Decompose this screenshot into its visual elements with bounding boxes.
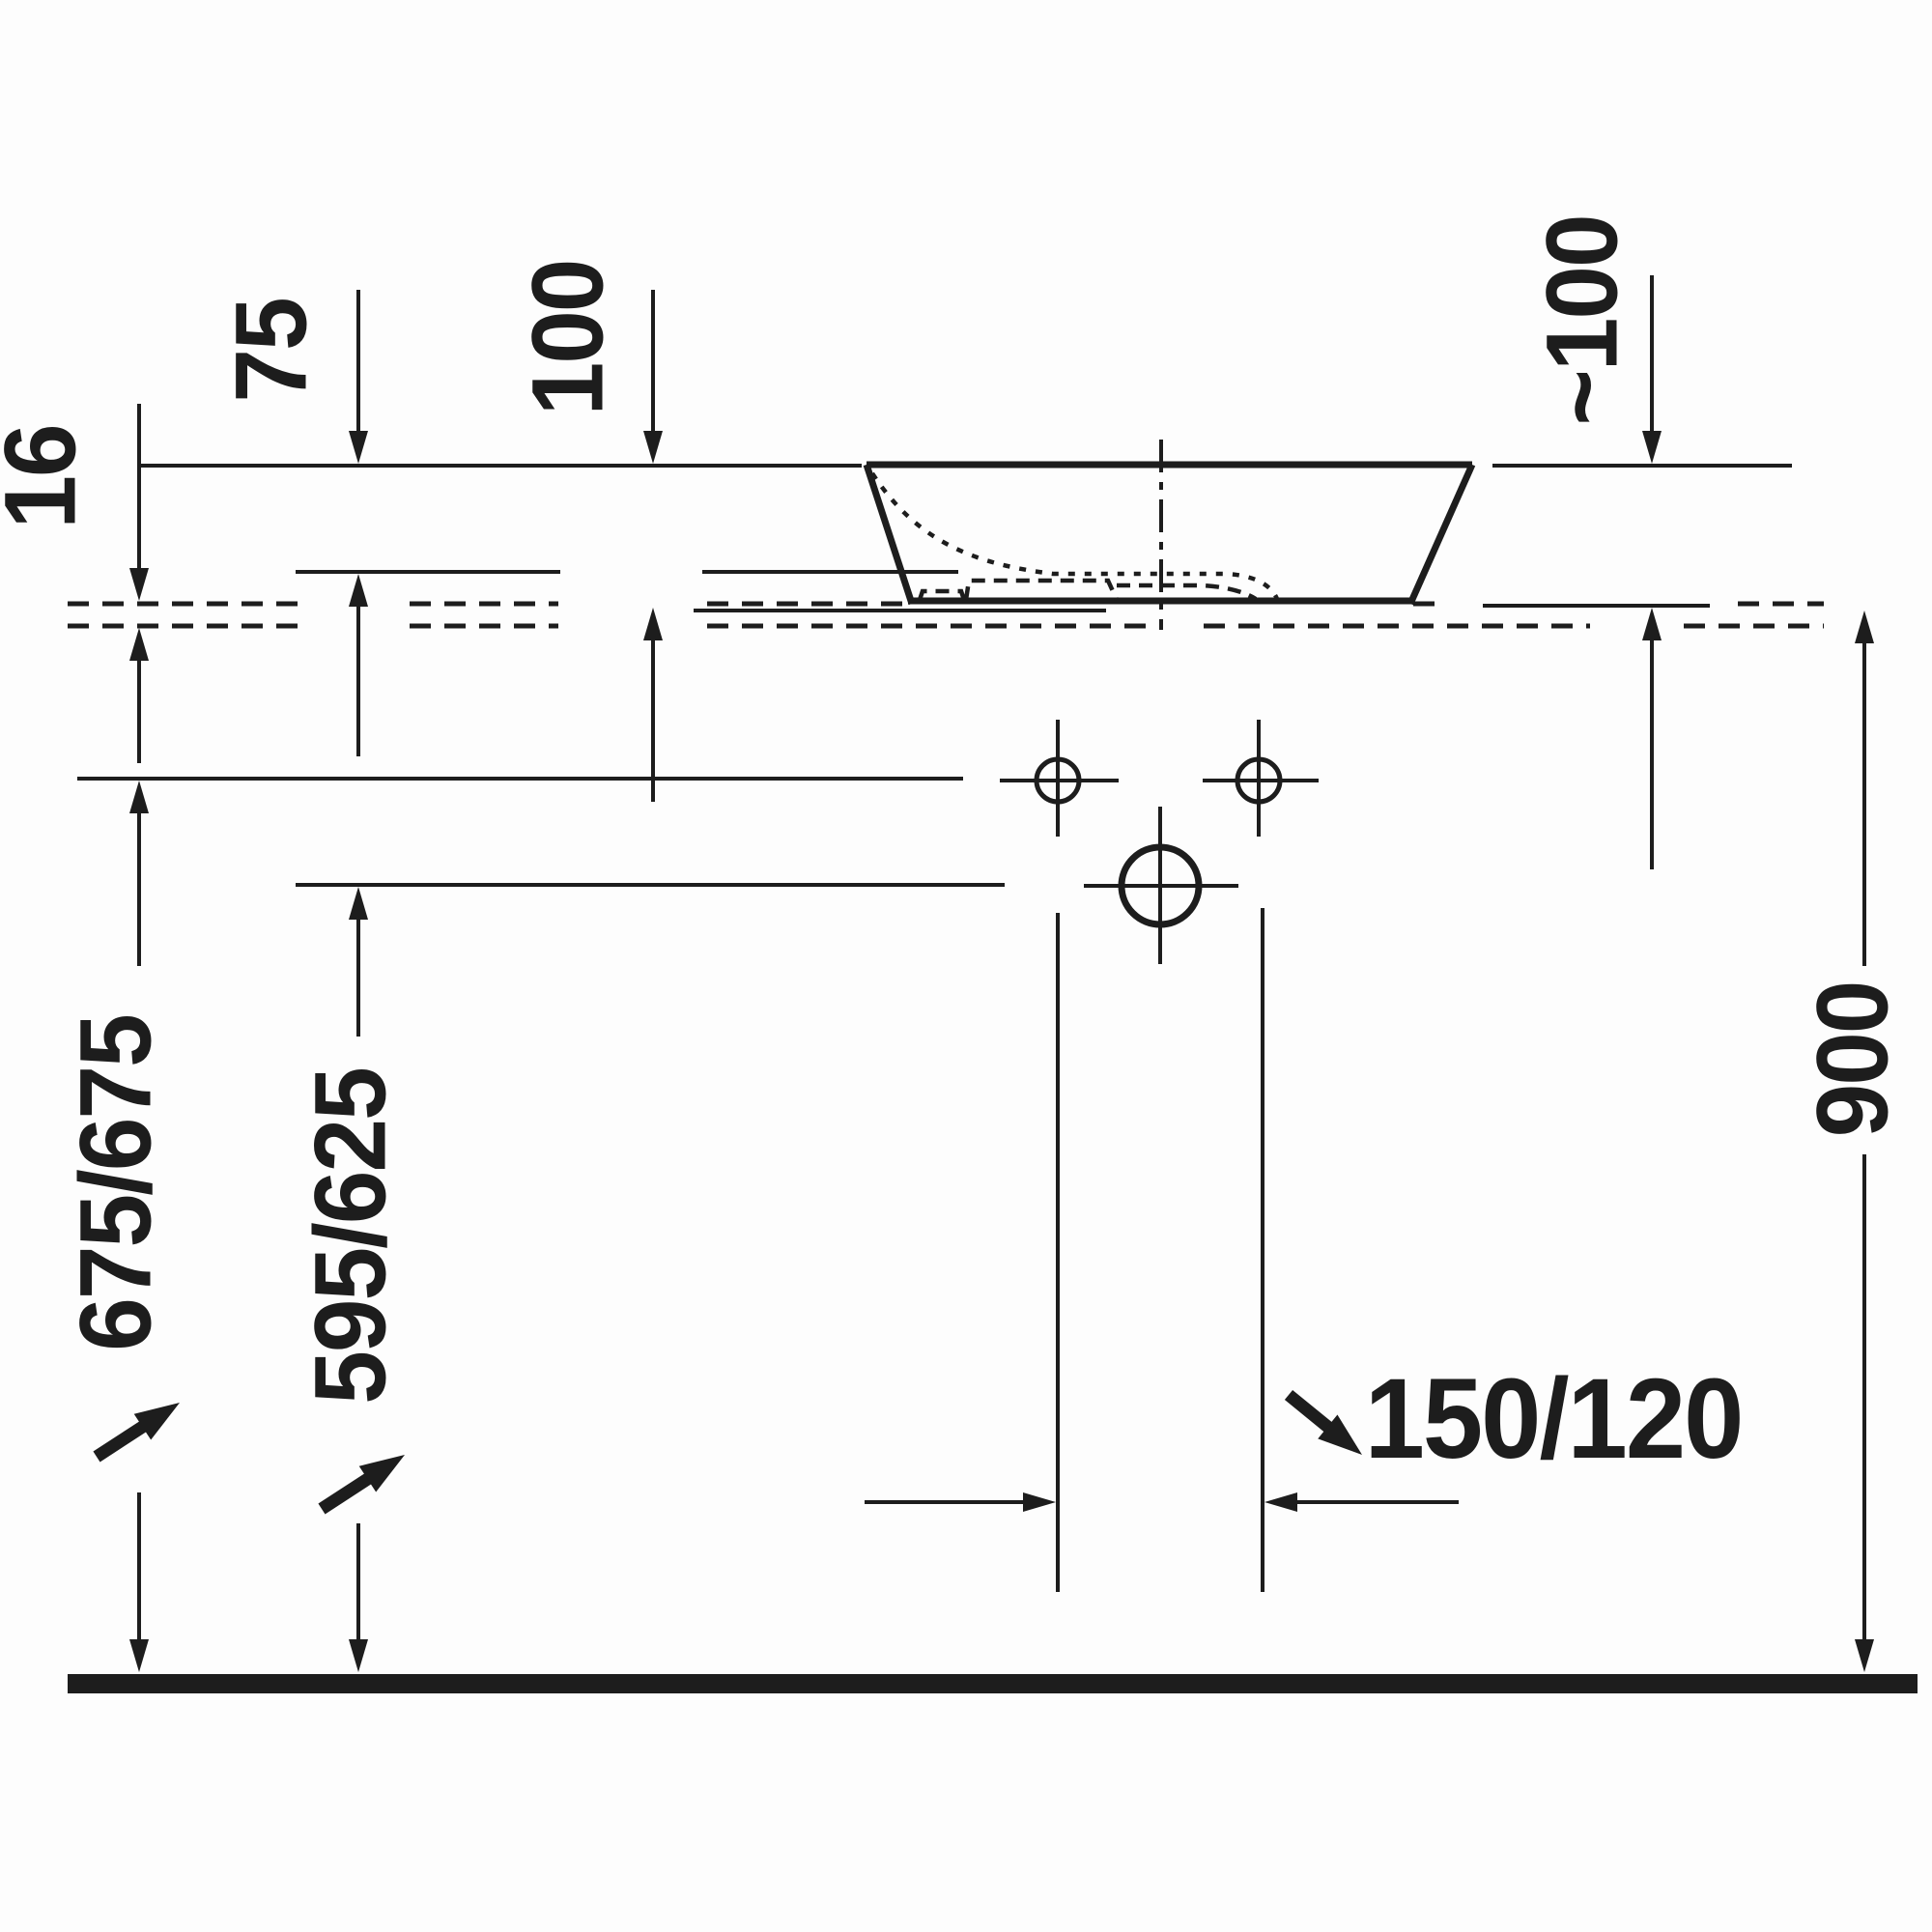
dim-label-675-675: 675/675 (58, 1015, 172, 1350)
dim-label-900: 900 (1795, 982, 1909, 1138)
dim-label-100-right: ~100 (1524, 215, 1638, 425)
dim-label-595-625: 595/625 (293, 1068, 407, 1404)
dimension-labels: 16 75 100 ~100 675/675 595/625 900 150/1… (0, 215, 1909, 1482)
dim-label-16: 16 (0, 425, 97, 528)
dim-label-75: 75 (213, 298, 327, 402)
washbasin-dimension-diagram: 16 75 100 ~100 675/675 595/625 900 150/1… (0, 0, 1932, 1932)
technical-drawing-page: 16 75 100 ~100 675/675 595/625 900 150/1… (0, 0, 1932, 1932)
dim-label-150-120: 150/120 (1365, 1356, 1743, 1483)
dim-label-100-left: 100 (510, 261, 624, 416)
